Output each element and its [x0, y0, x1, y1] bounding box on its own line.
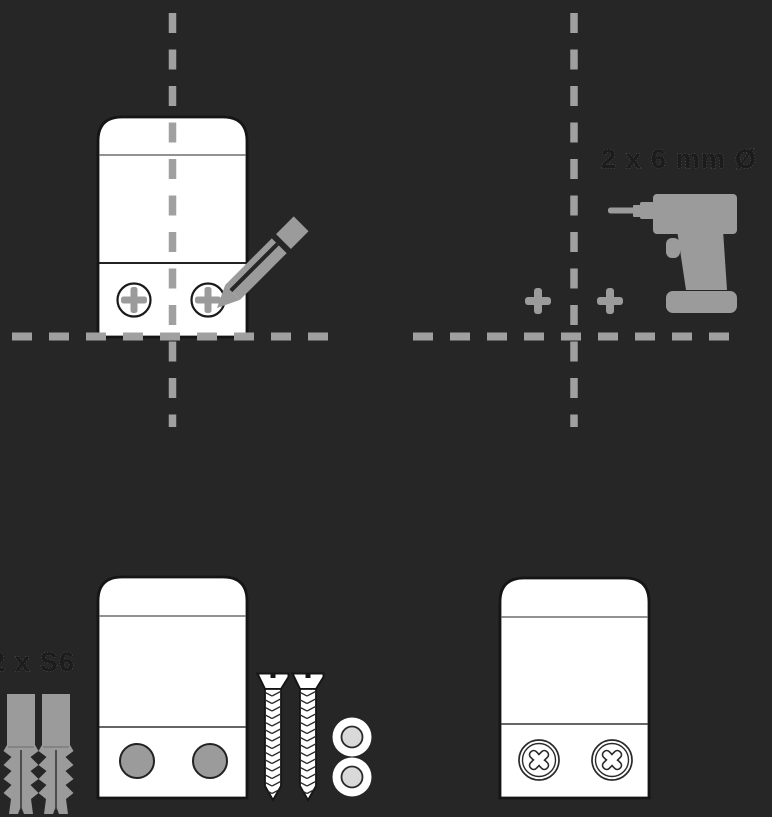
instruction-sheet: 2 x 6 mm Ø 2 x S6 — [0, 0, 772, 817]
washer-icon — [333, 718, 372, 757]
drill-trigger — [666, 238, 680, 258]
mounting-hole-right — [193, 744, 227, 778]
drill-chuck — [640, 202, 654, 219]
screw-head-icon — [519, 740, 559, 780]
wall-plug-icon — [4, 694, 39, 814]
drill-bit — [608, 208, 635, 214]
panel-mounted — [500, 578, 649, 798]
screw-position-cross-right — [192, 284, 225, 317]
device-outline — [500, 578, 649, 798]
screw-slot — [306, 673, 311, 679]
drill-body — [653, 194, 737, 234]
device-outline — [98, 577, 247, 798]
washer-icon — [333, 758, 372, 797]
drill-battery — [666, 291, 737, 313]
mounting-hole-left — [120, 744, 154, 778]
screw-slot — [271, 673, 276, 679]
screw-position-cross-left — [118, 284, 151, 317]
drill-spec-label: 2 x 6 mm Ø — [601, 144, 757, 174]
instruction-diagram: 2 x 6 mm Ø 2 x S6 — [0, 0, 772, 817]
wall-plug-icon — [39, 694, 74, 814]
anchor-spec-label: 2 x S6 — [0, 647, 75, 677]
screw-head-icon — [592, 740, 632, 780]
